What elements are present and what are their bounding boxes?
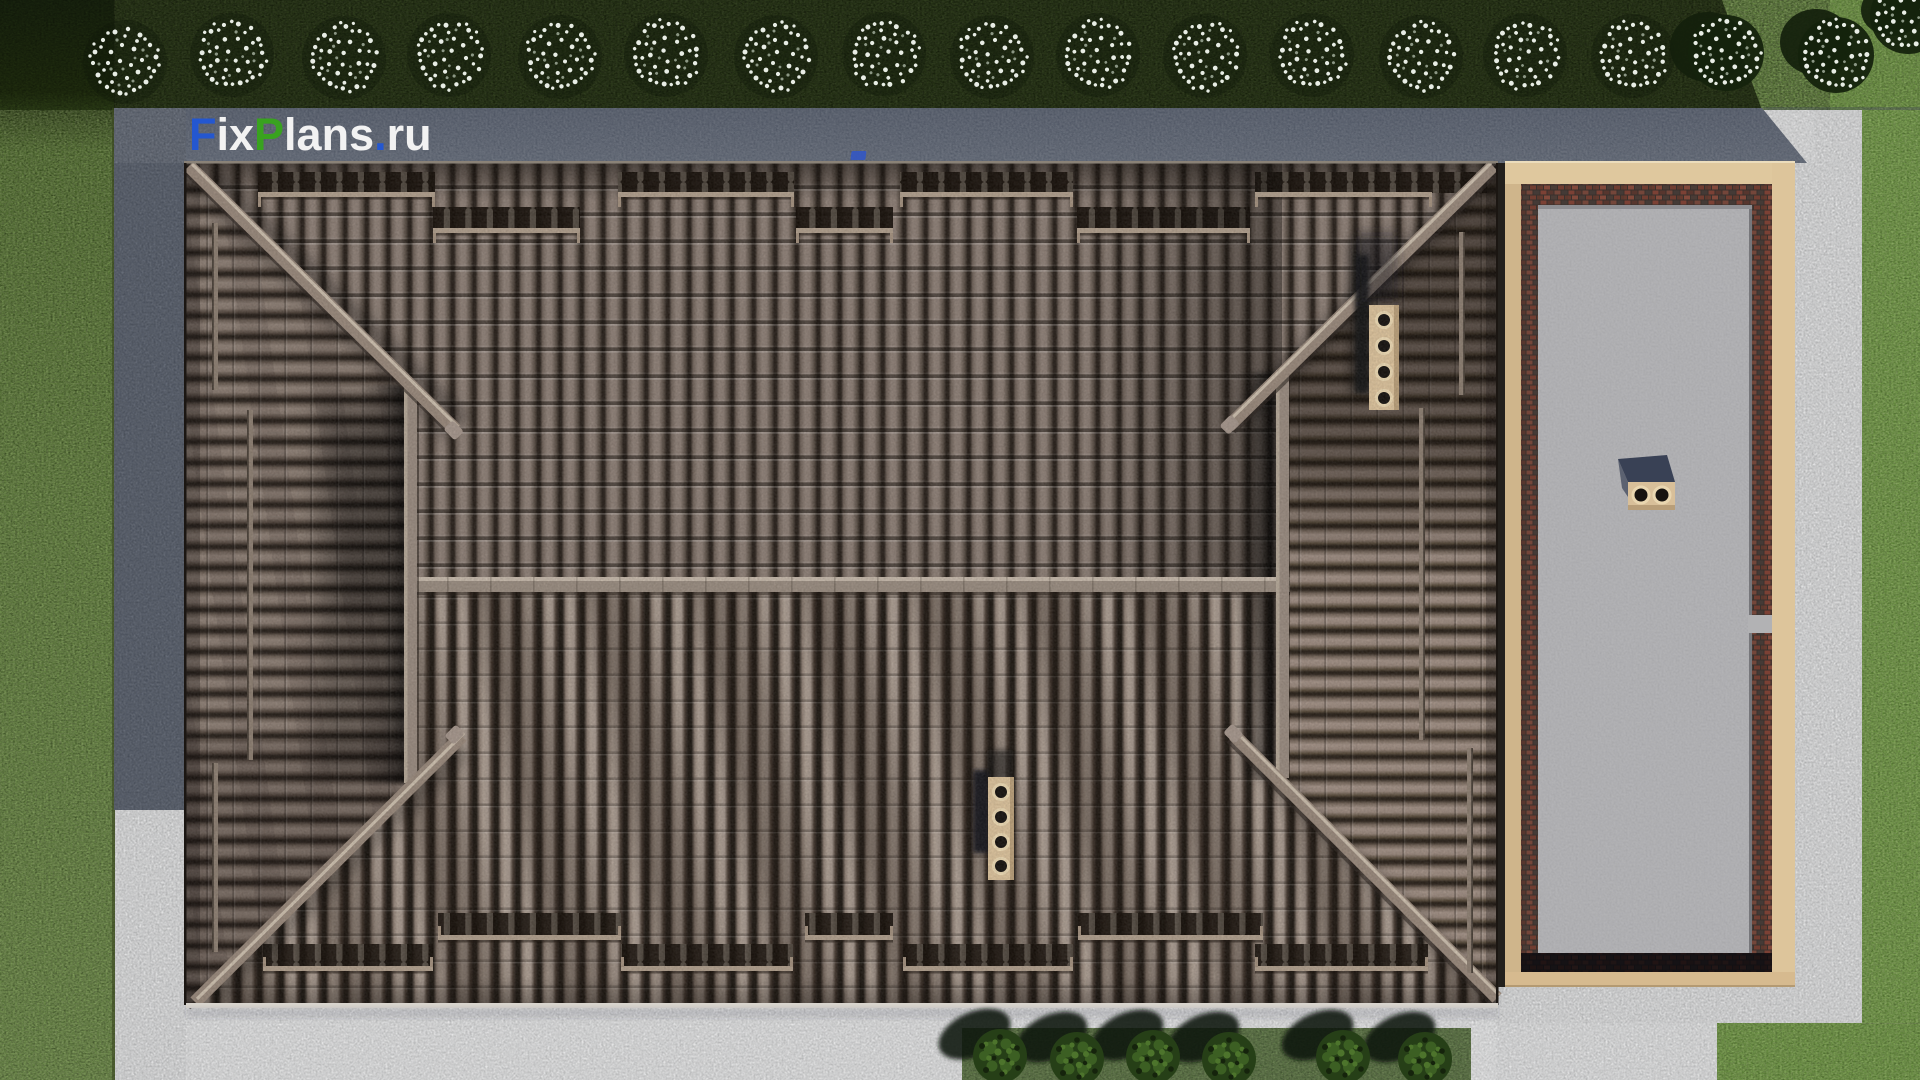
svg-text:FixPlans.ru: FixPlans.ru: [189, 109, 432, 160]
